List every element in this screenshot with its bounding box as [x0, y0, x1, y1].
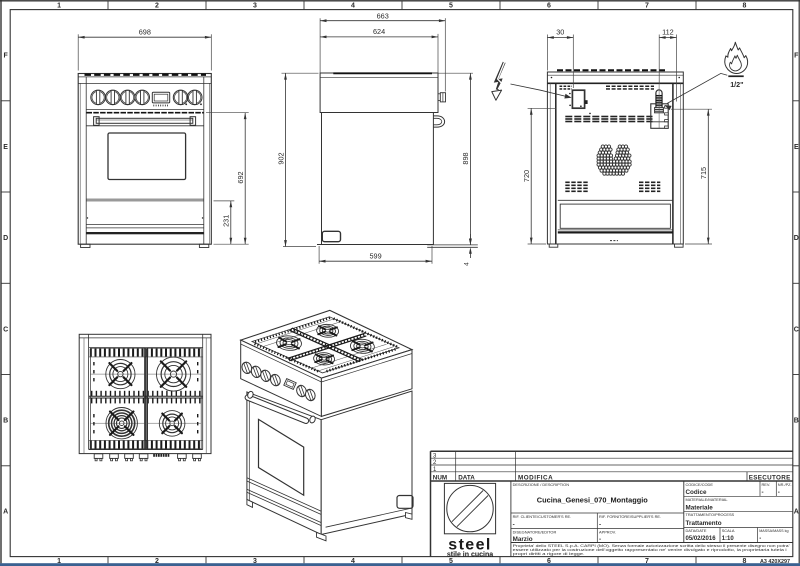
svg-text:DATA: DATA — [458, 474, 475, 481]
svg-text:4: 4 — [351, 558, 355, 565]
svg-text:CODICE/CODE: CODICE/CODE — [686, 482, 714, 487]
svg-text:B: B — [3, 418, 8, 425]
svg-text:SCALA: SCALA — [722, 528, 735, 533]
svg-text:4: 4 — [463, 262, 470, 266]
svg-text:902: 902 — [276, 152, 285, 164]
svg-text:7: 7 — [645, 558, 649, 565]
svg-text:6: 6 — [547, 558, 551, 565]
svg-text:NUM: NUM — [433, 474, 447, 481]
svg-text:DATA/DATE: DATA/DATE — [686, 528, 707, 533]
svg-text:-: - — [778, 489, 780, 496]
svg-text:D: D — [3, 235, 8, 242]
svg-text:1: 1 — [57, 3, 61, 10]
svg-text:F: F — [3, 53, 8, 60]
svg-text:720: 720 — [522, 170, 531, 182]
svg-text:E: E — [3, 144, 8, 151]
svg-text:APPROV.: APPROV. — [599, 530, 616, 535]
svg-text:624: 624 — [373, 27, 385, 36]
svg-text:B: B — [794, 418, 799, 425]
svg-text:4: 4 — [351, 3, 355, 10]
svg-text:692: 692 — [236, 171, 245, 183]
svg-text:D: D — [794, 235, 799, 242]
svg-text:A: A — [794, 509, 799, 516]
svg-text:A3 420X297: A3 420X297 — [760, 559, 790, 565]
svg-text:Materiale: Materiale — [686, 504, 714, 511]
svg-text:3: 3 — [253, 3, 257, 10]
svg-text:-: - — [762, 489, 764, 496]
svg-text:2: 2 — [155, 558, 159, 565]
svg-text:5: 5 — [449, 558, 453, 565]
svg-text:TRATTAMENTO/PROCESS: TRATTAMENTO/PROCESS — [686, 512, 735, 517]
svg-text:Cucina_Genesi_070_Montaggio: Cucina_Genesi_070_Montaggio — [537, 496, 648, 505]
svg-text:7: 7 — [645, 3, 649, 10]
svg-text:2: 2 — [155, 3, 159, 10]
svg-text:-: - — [599, 522, 601, 529]
svg-text:-: - — [513, 522, 515, 529]
svg-text:599: 599 — [370, 252, 382, 261]
svg-text:1:10: 1:10 — [722, 536, 735, 542]
svg-text:112: 112 — [662, 28, 674, 37]
svg-text:A: A — [3, 509, 8, 516]
svg-text:8: 8 — [742, 558, 746, 565]
svg-text:stile in cucina: stile in cucina — [447, 551, 493, 558]
svg-text:Trattamento: Trattamento — [686, 520, 722, 527]
svg-text:C: C — [794, 326, 799, 333]
svg-text:3: 3 — [253, 558, 257, 565]
svg-text:231: 231 — [222, 215, 231, 227]
svg-text:6: 6 — [547, 3, 551, 10]
svg-text:F: F — [794, 53, 799, 60]
svg-text:DESCRIZIONE / DESCRIPTION: DESCRIZIONE / DESCRIPTION — [513, 482, 570, 487]
svg-text:05/02/2016: 05/02/2016 — [686, 536, 717, 542]
svg-text:8: 8 — [742, 3, 746, 10]
svg-text:RIF. FORNITORE/SUPPLIER'S RE.: RIF. FORNITORE/SUPPLIER'S RE. — [599, 514, 661, 519]
svg-text:MODIFICA: MODIFICA — [518, 474, 553, 481]
svg-text:-: - — [759, 536, 761, 542]
svg-text:663: 663 — [377, 11, 389, 20]
svg-text:898: 898 — [461, 152, 470, 164]
svg-text:RIF. CLIENTE/CUSTOMER'S RE.: RIF. CLIENTE/CUSTOMER'S RE. — [513, 514, 572, 519]
svg-text:1: 1 — [57, 558, 61, 565]
svg-text:1/2": 1/2" — [730, 80, 743, 89]
svg-text:Codice: Codice — [686, 489, 707, 496]
svg-text:E: E — [794, 144, 799, 151]
svg-text:DISEGNATORE/EDITOR: DISEGNATORE/EDITOR — [513, 530, 557, 535]
svg-text:ESECUTORE: ESECUTORE — [749, 474, 791, 481]
svg-text:MASSA/MASS kg: MASSA/MASS kg — [759, 529, 788, 533]
svg-text:MATERIALE/MATERIAL: MATERIALE/MATERIAL — [686, 497, 729, 502]
svg-text:C: C — [3, 326, 8, 333]
svg-text:715: 715 — [699, 167, 708, 179]
svg-text:698: 698 — [139, 28, 151, 37]
svg-text:propri diritti a rigore di leg: propri diritti a rigore di legge. — [513, 551, 585, 556]
svg-text:5: 5 — [449, 3, 453, 10]
svg-text:NR./PZ.: NR./PZ. — [778, 482, 792, 487]
svg-text:REV.: REV. — [762, 482, 771, 487]
svg-text:30: 30 — [556, 28, 564, 37]
